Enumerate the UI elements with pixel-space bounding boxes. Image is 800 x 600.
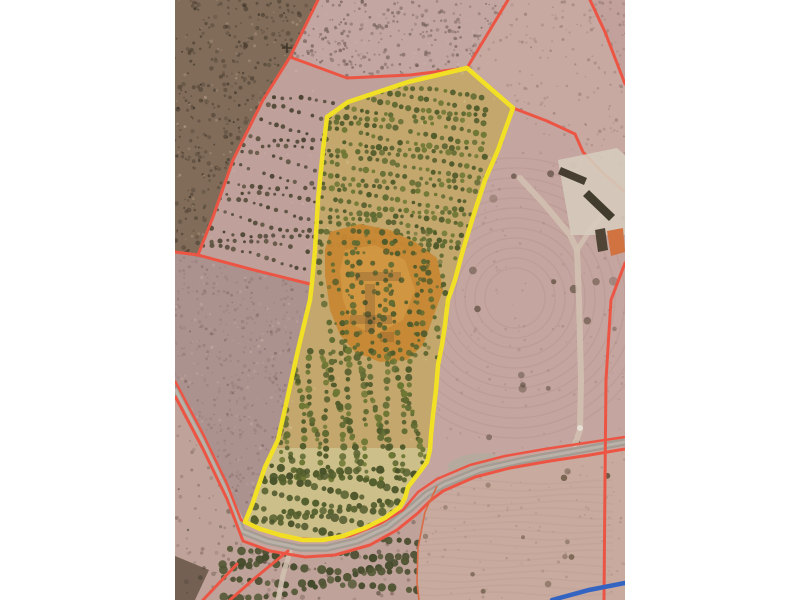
aerial-photo-svg (175, 0, 625, 600)
aerial-photo (175, 0, 625, 600)
screenshot-canvas (0, 0, 800, 600)
photo-tint-overlay (175, 0, 625, 600)
